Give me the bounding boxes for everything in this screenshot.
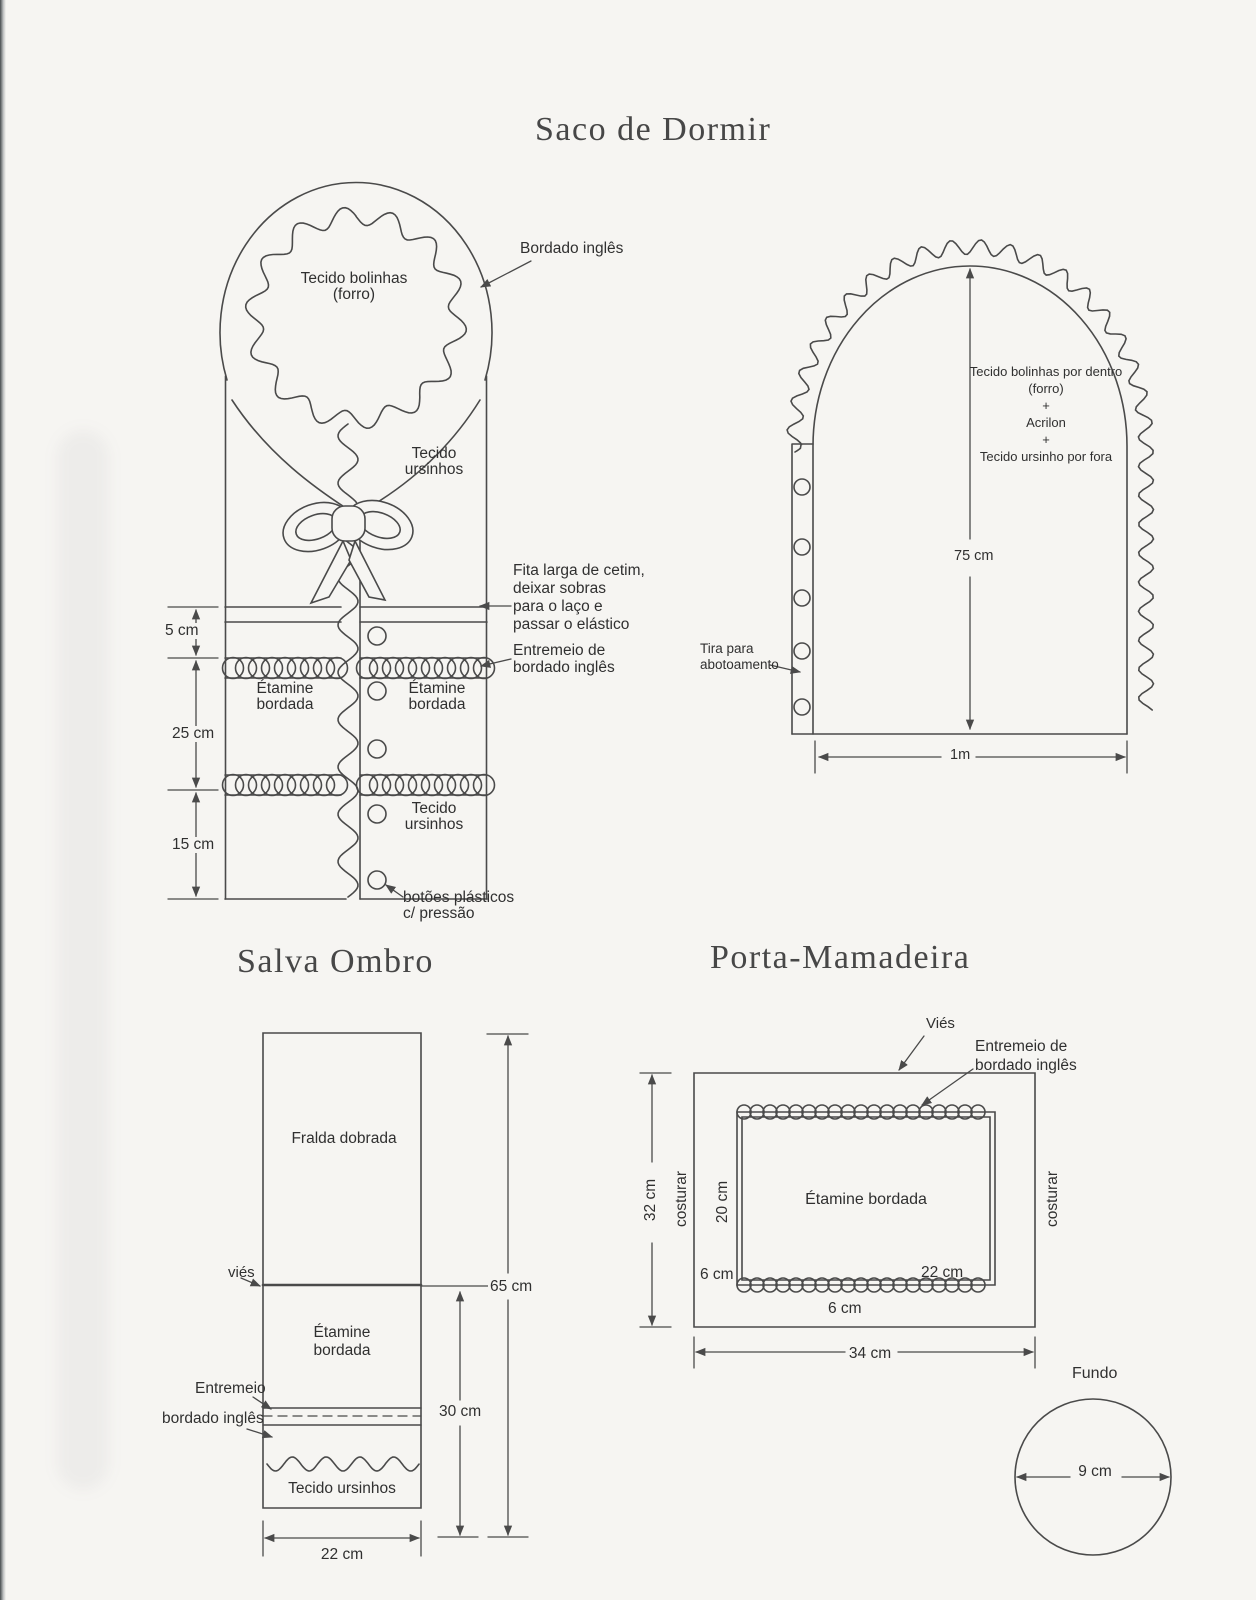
dim-65cm: 65 cm: [488, 1279, 534, 1295]
dimension-lines: [770, 269, 1127, 773]
fundo-label: Fundo: [1072, 1366, 1117, 1383]
etamine-salva-line2: bordada: [314, 1342, 371, 1359]
dim-32cm: 32 cm: [643, 1177, 659, 1223]
bow-knot: [332, 506, 365, 541]
dim-6cm-bottom: 6 cm: [828, 1301, 862, 1317]
hood-lining-line1: Tecido bolinhas: [301, 270, 408, 287]
scanned-pattern-page: Saco de Dormir Tecido bolinhas(forro) Bo…: [0, 0, 1256, 1600]
etamine-right-label: Étaminebordada: [409, 681, 466, 714]
etamine-left-line1: Étamine: [257, 680, 314, 697]
ricrac-line: [267, 1457, 419, 1471]
dim-6cm-left: 6 cm: [698, 1267, 736, 1283]
column-fabric-line2: ursinhos: [405, 816, 464, 833]
dim-22cm-salva: 22 cm: [321, 1547, 363, 1563]
strip-note-line1: Tira para: [700, 641, 754, 656]
vies-label-salva: viés: [228, 1265, 255, 1281]
dimension-lines: [241, 1034, 528, 1556]
ribbon-note-line1: Fita larga de cetim,: [513, 562, 645, 579]
buttons-note-label: botões plásticosc/ pressão: [403, 890, 514, 923]
costurar-right-label: costurar: [1045, 1171, 1061, 1227]
etamine-right-line2: bordada: [409, 696, 466, 713]
eyelet-note-pm-label: Entremeio debordado inglês: [975, 1037, 1077, 1075]
dim-5cm: 5 cm: [163, 623, 201, 639]
dim-15cm: 15 cm: [170, 837, 216, 853]
layers-line1: Tecido bolinhas por dentro: [970, 364, 1123, 379]
strip-note-line2: abotoamento: [700, 657, 779, 672]
scan-smudge: [57, 430, 109, 1490]
eyelet-band: [223, 658, 348, 679]
etamine-left-label: Étaminebordada: [257, 681, 314, 714]
entremeio-salva-label: Entremeio: [195, 1381, 266, 1397]
dim-34cm: 34 cm: [847, 1346, 893, 1362]
eyelet-note-line2: bordado inglês: [513, 659, 615, 676]
dim-1m: 1m: [948, 748, 972, 763]
section-title-porta-mamadeira: Porta-Mamadeira: [710, 940, 970, 976]
strip-note-label: Tira paraabotoamento: [700, 641, 779, 673]
eyelet-band: [357, 775, 495, 796]
eyelet-band: [357, 658, 495, 679]
eyelet-note-line1: Entremeio de: [513, 642, 605, 659]
pattern-line-art: [0, 0, 1256, 1600]
ribbon-note-line3: para o laço e: [513, 598, 603, 615]
eyelet-band: [223, 775, 348, 796]
strip-buttons: [794, 479, 810, 715]
dim-75cm: 75 cm: [952, 549, 996, 564]
ribbon-note-line2: deixar sobras: [513, 580, 606, 597]
panel-rect: [263, 1033, 421, 1508]
shoulder-pad-diagram: [241, 1033, 528, 1556]
etamine-pm-label: Étamine bordada: [805, 1192, 927, 1209]
dim-9cm: 9 cm: [1076, 1464, 1114, 1480]
bordado-salva-label: bordado inglês: [162, 1411, 264, 1427]
ribbon-note-line4: passar o elástico: [513, 616, 629, 633]
dim-20cm: 20 cm: [715, 1181, 731, 1223]
hood-ricrac-trim: [246, 208, 467, 429]
buttons-note-line2: c/ pressão: [403, 905, 475, 922]
back-panel-diagram: [770, 240, 1154, 773]
dimension-lines: [168, 607, 218, 899]
hood-fabric-label: Tecidoursinhos: [405, 446, 464, 479]
scan-edge-shadow: [0, 0, 6, 1600]
vies-label-pm: Viés: [926, 1016, 955, 1032]
etamine-salva-line1: Étamine: [314, 1324, 371, 1341]
ribbon-bow: [276, 492, 420, 603]
layers-line2: (forro): [1028, 381, 1063, 396]
costurar-left-label: costurar: [674, 1171, 690, 1227]
bow-tail-right: [349, 541, 385, 600]
buttons-note-line1: botões plásticos: [403, 889, 514, 906]
dim-30cm: 30 cm: [437, 1404, 483, 1420]
dim-25cm: 25 cm: [170, 726, 216, 742]
hood-lining-line2: (forro): [333, 286, 375, 303]
hood-lining-label: Tecido bolinhas(forro): [301, 271, 408, 304]
hood-fabric-line1: Tecido: [412, 445, 457, 462]
layers-plus2: +: [1042, 432, 1050, 447]
layers-note-label: Tecido bolinhas por dentro(forro)+Acrilo…: [970, 363, 1123, 465]
eyelet-note-label: Entremeio debordado inglês: [513, 642, 615, 676]
layers-plus1: +: [1042, 398, 1050, 413]
bordado-ingles-label: Bordado inglês: [520, 241, 623, 257]
etamine-left-line2: bordada: [257, 696, 314, 713]
ribbon-casing: [225, 607, 487, 622]
page-title-saco: Saco de Dormir: [535, 112, 771, 148]
ribbon-note-label: Fita larga de cetim,deixar sobraspara o …: [513, 562, 645, 634]
etamine-right-line1: Étamine: [409, 680, 466, 697]
dim-22cm-pm: 22 cm: [921, 1265, 963, 1281]
layers-line4: Tecido ursinho por fora: [980, 449, 1112, 464]
eyelet-pm-line2: bordado inglês: [975, 1057, 1077, 1074]
fralda-label: Fralda dobrada: [291, 1131, 396, 1147]
center-ricrac-opening: [338, 424, 358, 897]
layers-line3: Acrilon: [1026, 415, 1066, 430]
eyelet-pm-line1: Entremeio de: [975, 1038, 1067, 1055]
etamine-salva-label: Étaminebordada: [314, 1324, 371, 1360]
column-fabric-label: Tecidoursinhos: [405, 801, 464, 834]
section-title-salva-ombro: Salva Ombro: [237, 944, 434, 980]
tecido-ursinhos-salva-label: Tecido ursinhos: [288, 1481, 396, 1497]
hood-fabric-line2: ursinhos: [405, 461, 464, 478]
column-fabric-line1: Tecido: [412, 800, 457, 817]
